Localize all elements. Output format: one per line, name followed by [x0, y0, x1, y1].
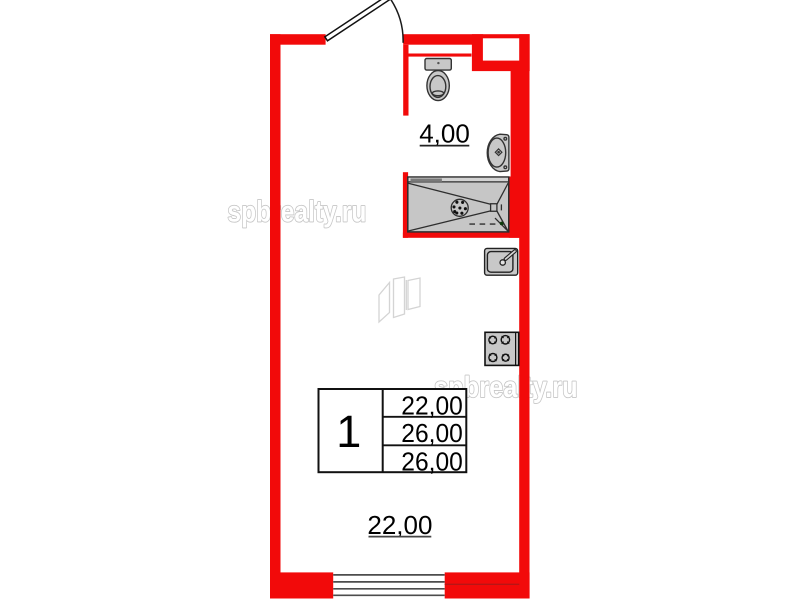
svg-text:spbrealty.ru: spbrealty.ru [227, 196, 366, 229]
svg-text:22,00: 22,00 [401, 391, 463, 421]
svg-text:26,00: 26,00 [401, 446, 463, 476]
svg-text:26,00: 26,00 [401, 418, 463, 448]
svg-text:4,00: 4,00 [419, 119, 470, 149]
svg-text:1: 1 [336, 406, 361, 457]
svg-text:22,00: 22,00 [367, 510, 432, 540]
